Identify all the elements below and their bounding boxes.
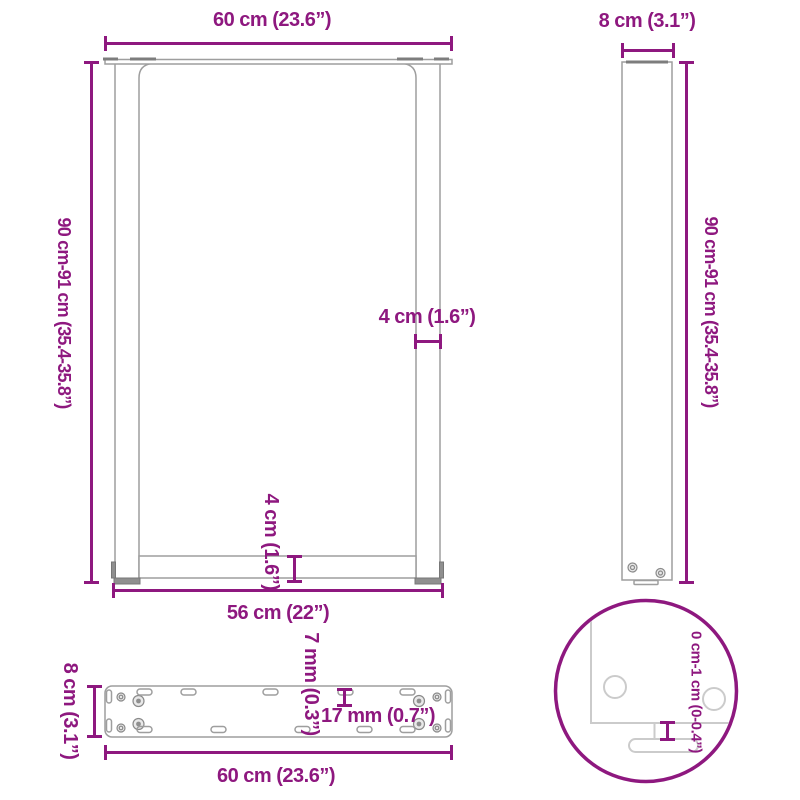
front-plate-tab — [397, 58, 423, 61]
plate-bolt-center — [417, 699, 422, 704]
side-leg-body — [622, 62, 672, 580]
front-height-dim-line — [90, 62, 93, 583]
side-screw — [656, 569, 665, 578]
plate-depth-dim-line — [93, 686, 96, 737]
front-inner-width-label: 56 cm (22”) — [227, 603, 329, 623]
plate-screw — [433, 693, 441, 701]
plate-width-label: 60 cm (23.6”) — [217, 766, 335, 786]
front-right-foot-knob — [440, 562, 444, 578]
front-right-foot — [415, 578, 441, 584]
side-height-label: 90 cm-91 cm (35.4-35.8”) — [702, 217, 720, 408]
side-height-dim-line — [685, 62, 688, 583]
side-foot — [634, 581, 658, 585]
front-plate-tab — [434, 58, 449, 61]
detail-circle-drawing — [556, 601, 741, 782]
side-depth-label: 8 cm (3.1”) — [599, 11, 696, 31]
front-plate-tab — [130, 58, 156, 61]
front-width-label: 60 cm (23.6”) — [213, 10, 331, 30]
front-bar-width-label: 4 cm (1.6”) — [379, 307, 476, 327]
front-bar-width-dim-line — [415, 340, 441, 343]
front-width-dim-line — [105, 42, 452, 45]
front-height-label: 90 cm-91 cm (35.4-35.8”) — [55, 218, 73, 409]
detail-circle — [556, 601, 737, 782]
detail-adjust-dim-line — [666, 722, 669, 740]
plate-depth-label: 8 cm (3.1”) — [60, 663, 80, 760]
front-left-foot-knob — [112, 562, 116, 578]
plate-width-dim-line — [105, 751, 452, 754]
plate-screw — [117, 693, 125, 701]
dimension-diagram: 60 cm (23.6”) 90 cm-91 cm (35.4-35.8”) 4… — [0, 0, 800, 800]
plate-screw — [117, 724, 125, 732]
side-top-plate-edge — [626, 61, 668, 64]
front-left-leg — [115, 64, 152, 584]
plate-bolt-center — [136, 722, 141, 727]
plate-slot-dim-line — [343, 689, 346, 706]
plate-slot-width-label: 7 mm (0.3”) — [301, 632, 321, 735]
side-view-drawing — [622, 61, 672, 585]
detail-adjust-label: 0 cm-1 cm (0-0.4”) — [689, 631, 704, 753]
front-bar-height-label: 4 cm (1.6”) — [261, 494, 281, 591]
front-plate-tab — [103, 58, 118, 61]
front-left-foot — [114, 578, 140, 584]
side-screw — [628, 563, 637, 572]
line-art-layer — [0, 0, 800, 800]
side-depth-dim-line — [622, 49, 674, 52]
plate-hole-spacing-label: 17 mm (0.7”) — [321, 706, 435, 726]
plate-bolt-center — [136, 699, 141, 704]
front-bar-height-dim-line — [293, 556, 296, 582]
